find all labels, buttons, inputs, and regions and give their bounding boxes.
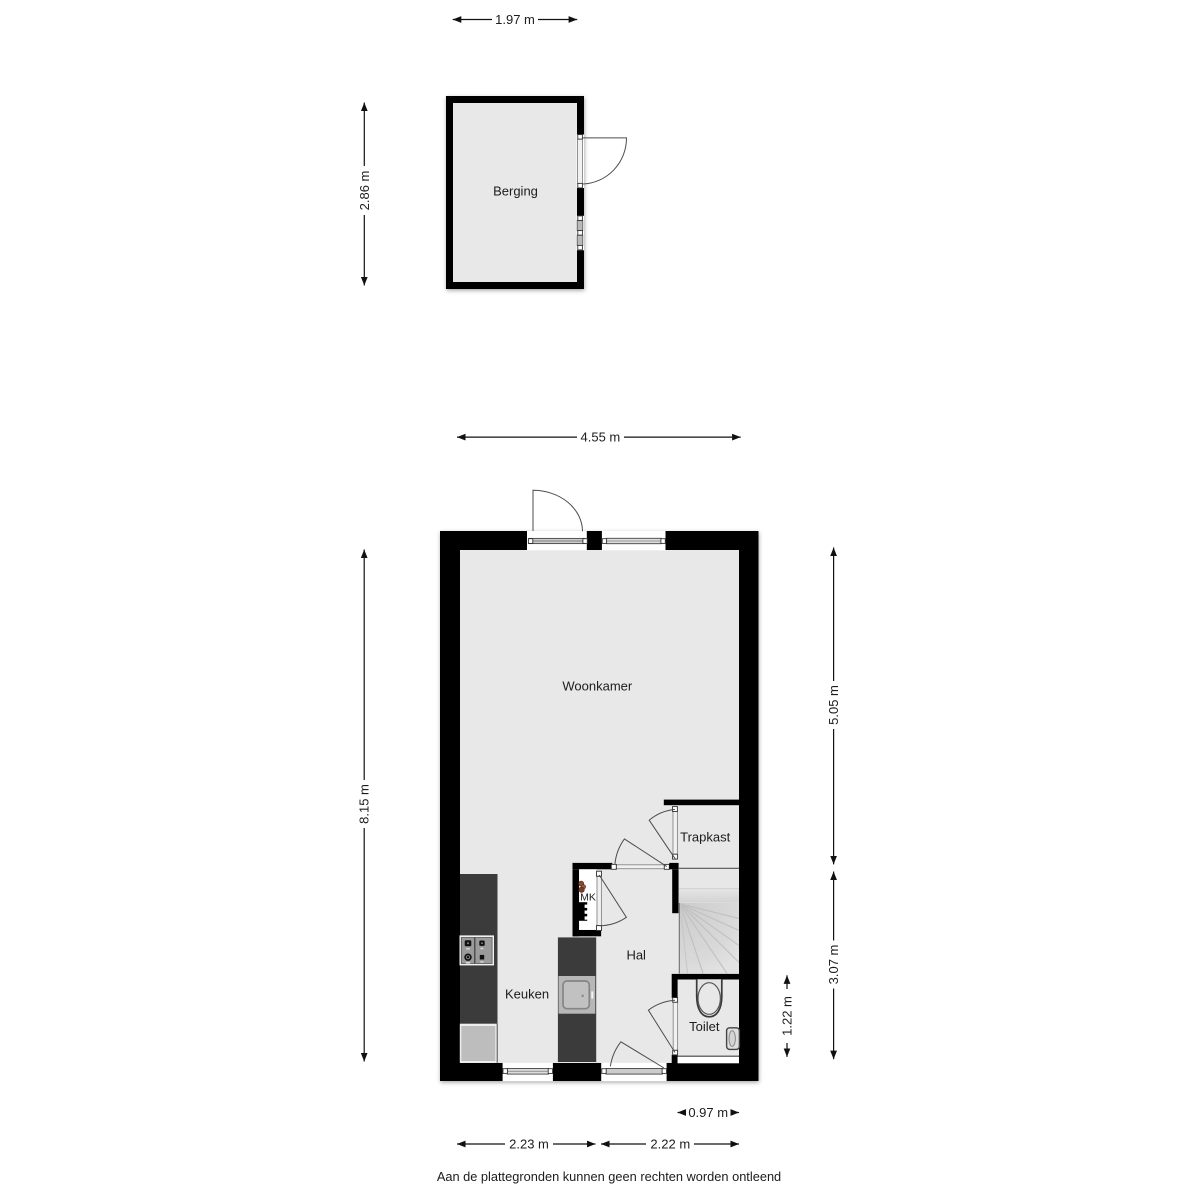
- svg-text:4.55 m: 4.55 m: [581, 430, 621, 445]
- svg-text:MK: MK: [580, 891, 596, 903]
- svg-text:1.97 m: 1.97 m: [495, 12, 535, 27]
- svg-text:Hal: Hal: [626, 947, 646, 962]
- svg-text:8.15 m: 8.15 m: [357, 784, 372, 824]
- svg-text:5.05 m: 5.05 m: [826, 685, 841, 725]
- svg-text:Berging: Berging: [493, 184, 538, 199]
- svg-text:1.22 m: 1.22 m: [780, 996, 795, 1036]
- svg-text:Trapkast: Trapkast: [680, 830, 730, 845]
- svg-text:Toilet: Toilet: [689, 1019, 720, 1034]
- svg-text:0.97 m: 0.97 m: [688, 1105, 728, 1120]
- svg-text:Aan de plattegronden kunnen ge: Aan de plattegronden kunnen geen rechten…: [437, 1169, 781, 1184]
- svg-text:2.86 m: 2.86 m: [357, 171, 372, 211]
- svg-text:Woonkamer: Woonkamer: [562, 678, 633, 693]
- svg-text:2.23 m: 2.23 m: [509, 1137, 549, 1152]
- svg-text:Keuken: Keuken: [505, 987, 549, 1002]
- svg-text:2.22 m: 2.22 m: [650, 1137, 690, 1152]
- svg-text:3.07 m: 3.07 m: [826, 945, 841, 985]
